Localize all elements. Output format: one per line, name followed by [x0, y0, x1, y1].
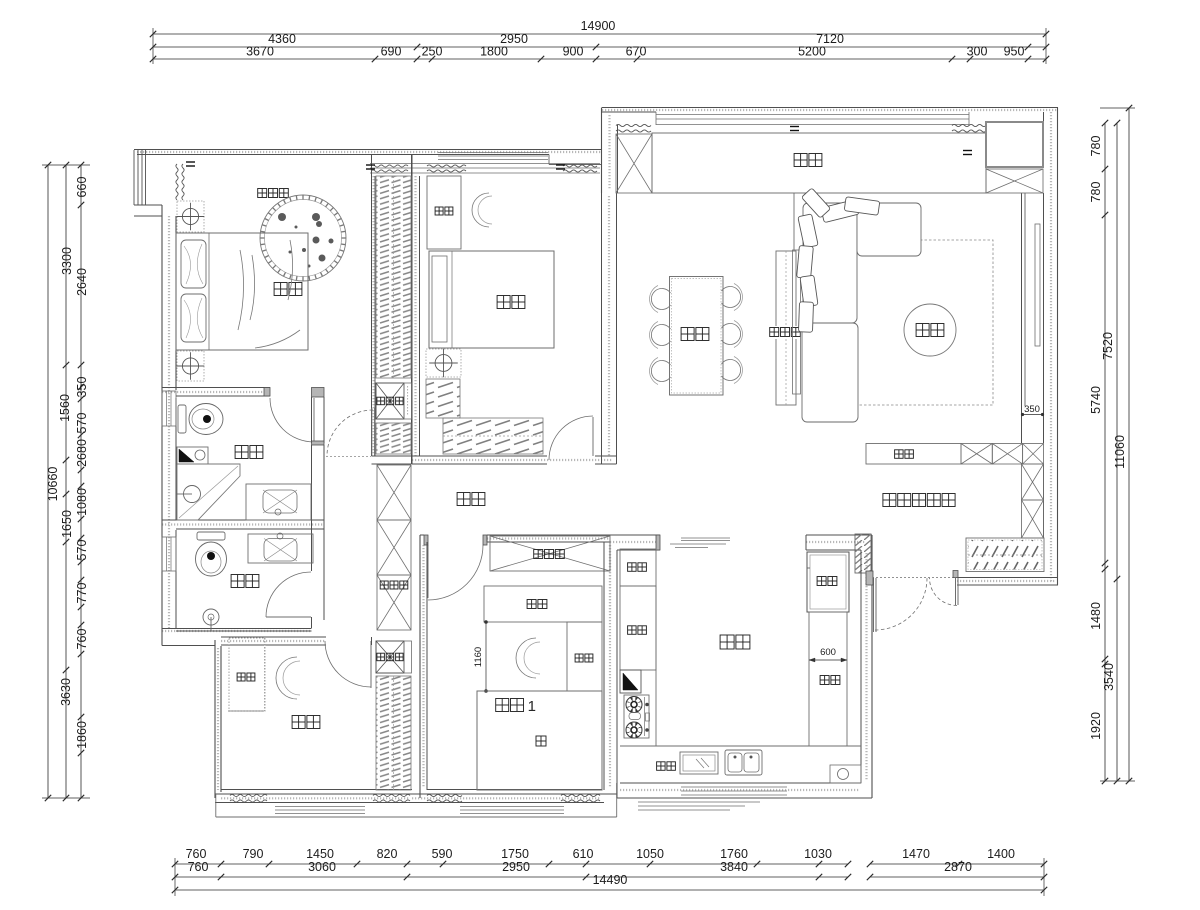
svg-text:1450: 1450: [306, 847, 334, 861]
svg-text:14900: 14900: [581, 19, 616, 33]
svg-text:5740: 5740: [1089, 386, 1103, 414]
svg-text:1560: 1560: [58, 394, 72, 422]
svg-text:780: 780: [1089, 136, 1103, 157]
svg-text:2640: 2640: [75, 268, 89, 296]
svg-text:1650: 1650: [60, 510, 74, 538]
svg-text:1760: 1760: [720, 847, 748, 861]
svg-text:2680: 2680: [75, 439, 89, 467]
svg-text:5200: 5200: [798, 45, 826, 59]
svg-text:3060: 3060: [308, 860, 336, 874]
svg-text:600: 600: [820, 647, 836, 658]
svg-text:670: 670: [626, 45, 647, 59]
svg-text:690: 690: [381, 45, 402, 59]
svg-text:2950: 2950: [502, 860, 530, 874]
svg-text:1480: 1480: [1089, 602, 1103, 630]
svg-text:350: 350: [1024, 404, 1040, 415]
svg-text:10660: 10660: [46, 467, 60, 502]
svg-text:1160: 1160: [473, 647, 484, 667]
svg-text:2870: 2870: [944, 860, 972, 874]
svg-text:1470: 1470: [902, 847, 930, 861]
svg-text:610: 610: [573, 847, 594, 861]
svg-text:770: 770: [75, 583, 89, 604]
svg-text:760: 760: [75, 629, 89, 650]
svg-text:1860: 1860: [75, 721, 89, 749]
svg-text:350: 350: [75, 377, 89, 398]
svg-text:7520: 7520: [1101, 332, 1115, 360]
svg-text:790: 790: [243, 847, 264, 861]
svg-text:1920: 1920: [1089, 712, 1103, 740]
svg-text:1030: 1030: [804, 847, 832, 861]
svg-text:3630: 3630: [59, 678, 73, 706]
svg-text:590: 590: [432, 847, 453, 861]
svg-text:570: 570: [75, 540, 89, 561]
svg-text:780: 780: [1089, 182, 1103, 203]
svg-text:3300: 3300: [60, 247, 74, 275]
svg-text:3540: 3540: [1102, 663, 1116, 691]
svg-text:900: 900: [563, 45, 584, 59]
svg-text:760: 760: [186, 847, 207, 861]
svg-text:570: 570: [75, 413, 89, 434]
svg-text:11060: 11060: [1113, 435, 1127, 469]
svg-text:1400: 1400: [987, 847, 1015, 861]
svg-text:820: 820: [377, 847, 398, 861]
svg-text:3840: 3840: [720, 860, 748, 874]
svg-text:1800: 1800: [480, 45, 508, 59]
svg-text:660: 660: [75, 177, 89, 198]
svg-text:1080: 1080: [75, 488, 89, 516]
svg-text:300: 300: [967, 45, 988, 59]
svg-text:950: 950: [1004, 45, 1025, 59]
svg-text:3670: 3670: [246, 45, 274, 59]
svg-text:760: 760: [188, 860, 209, 874]
svg-text:14490: 14490: [593, 873, 628, 887]
svg-text:250: 250: [422, 45, 443, 59]
svg-text:1: 1: [528, 698, 536, 715]
svg-text:1050: 1050: [636, 847, 664, 861]
svg-text:1750: 1750: [501, 847, 529, 861]
